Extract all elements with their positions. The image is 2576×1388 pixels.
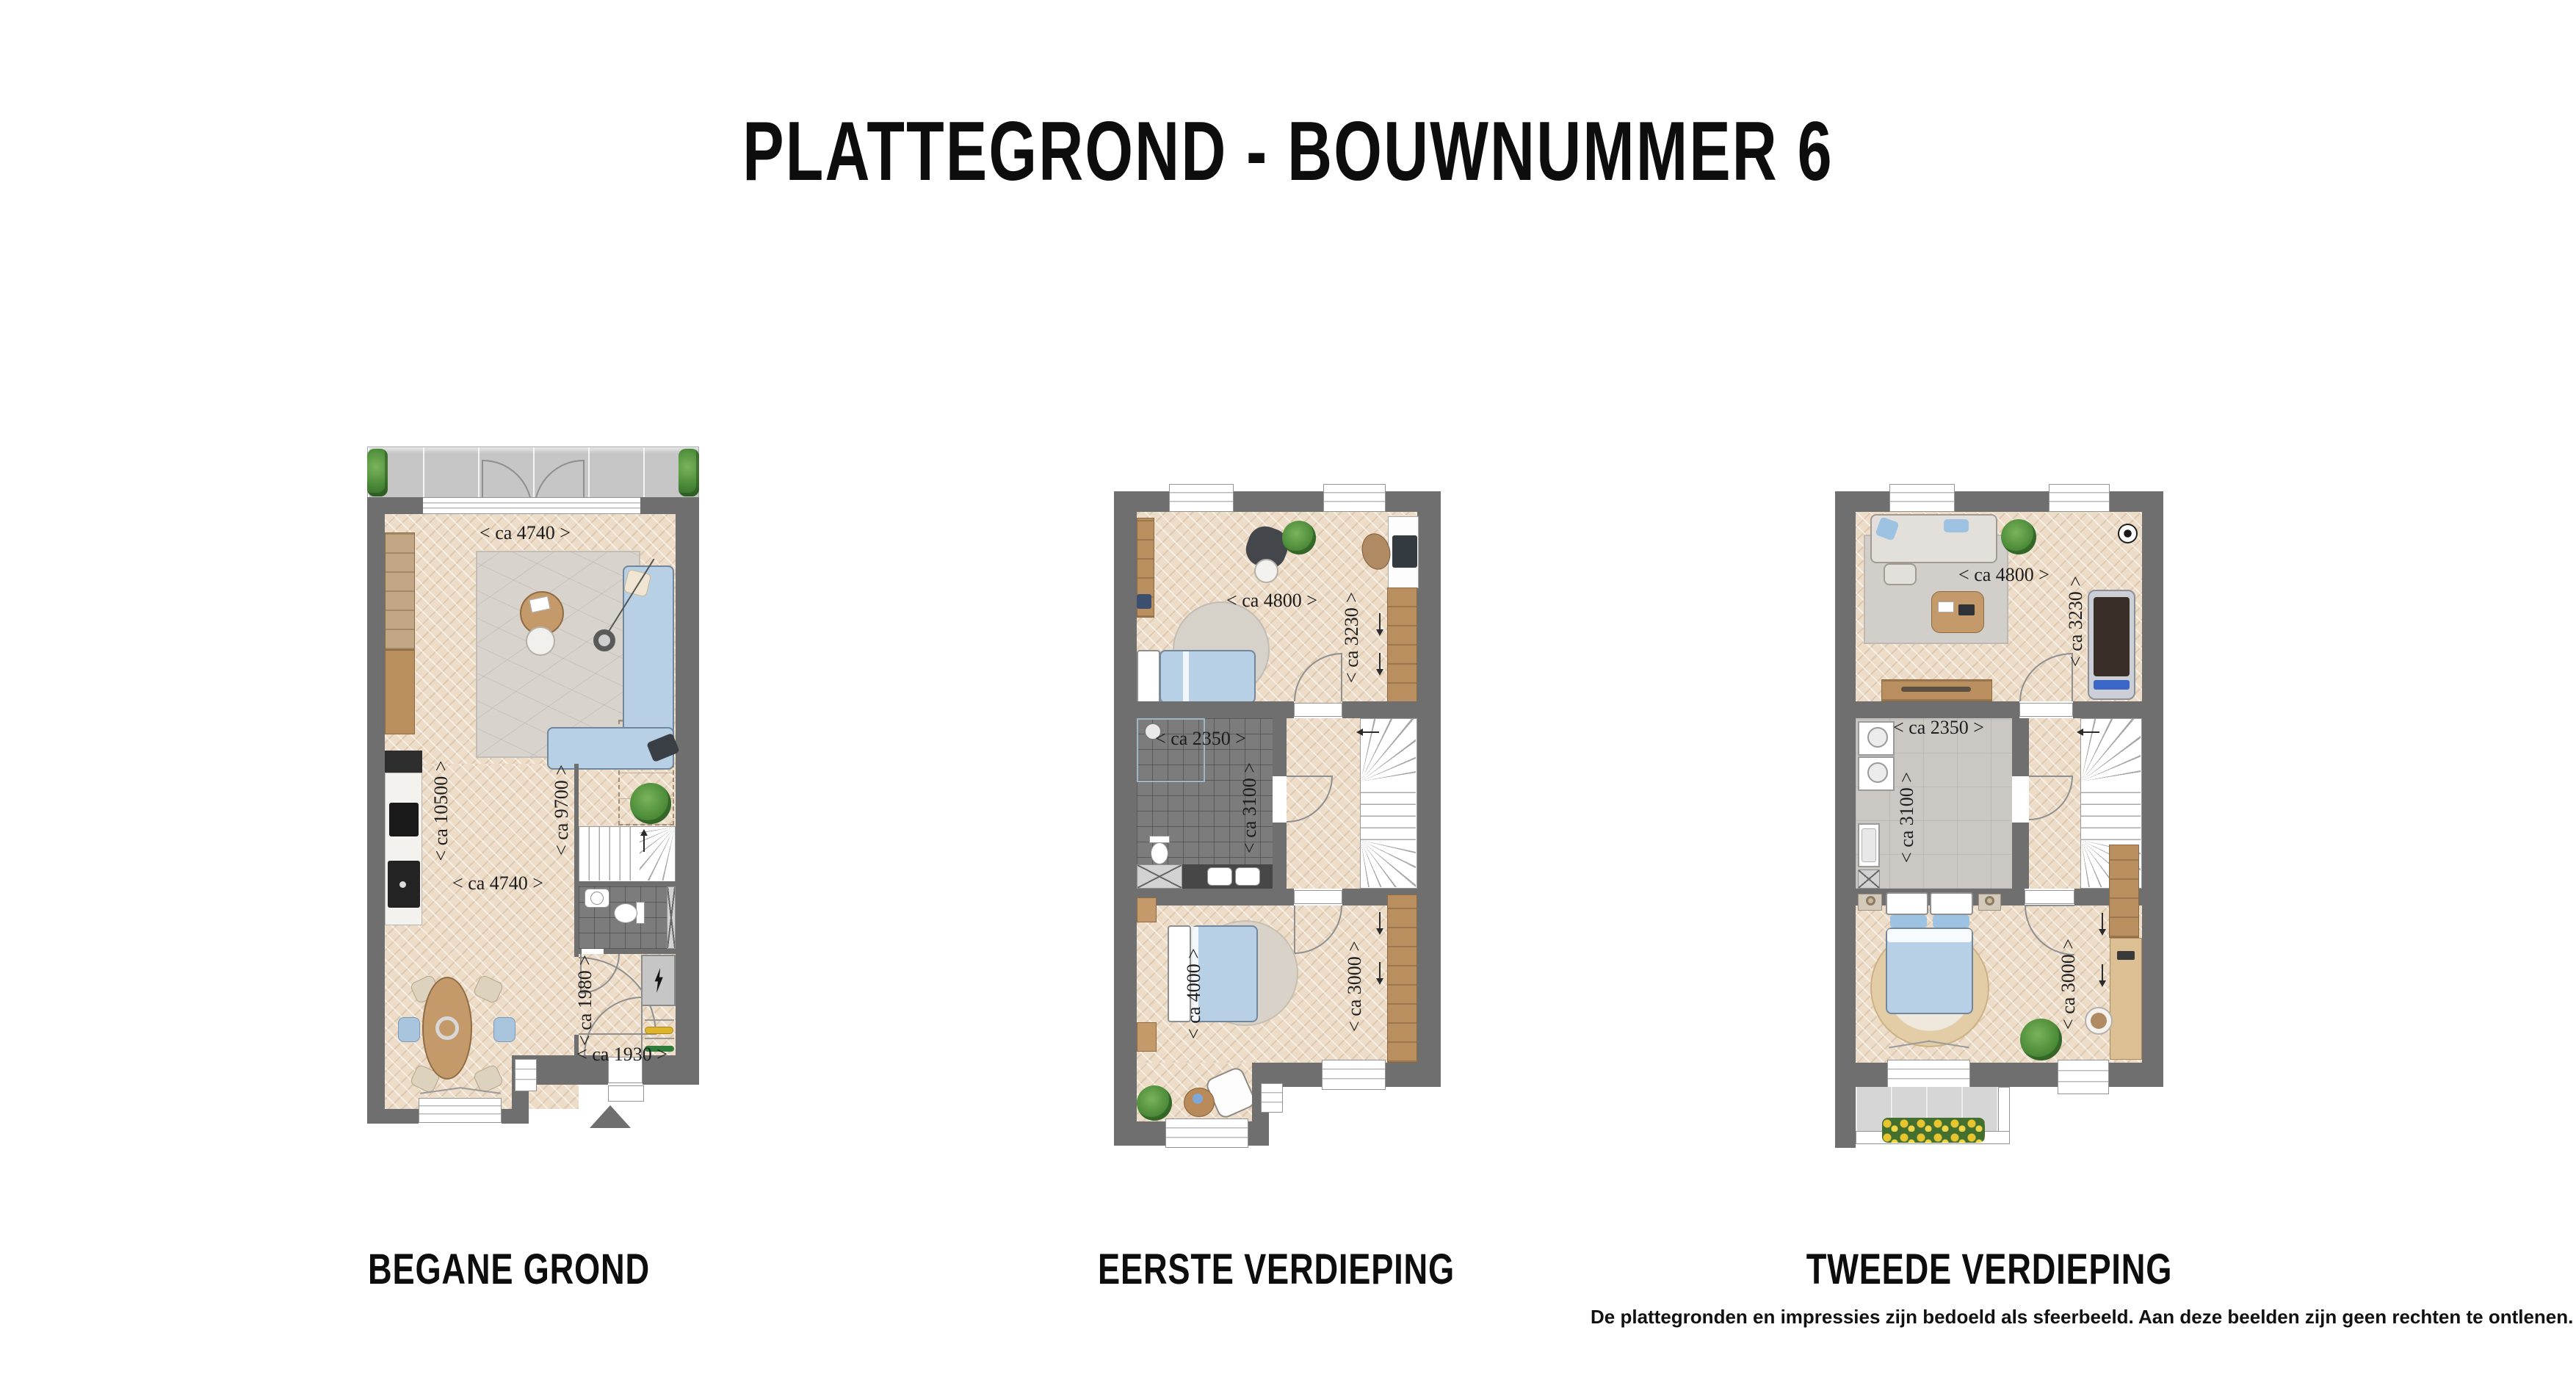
window bbox=[1261, 1083, 1283, 1113]
dim-label: < ca 3100 > bbox=[1240, 762, 1259, 853]
side-table bbox=[1254, 559, 1278, 583]
window bbox=[1165, 1118, 1248, 1148]
wall bbox=[2012, 823, 2029, 889]
hedge bbox=[367, 449, 388, 496]
wall bbox=[574, 764, 579, 957]
sink bbox=[1207, 867, 1232, 886]
entrance-step bbox=[608, 1085, 644, 1102]
wall bbox=[604, 949, 676, 954]
duct-shaft bbox=[1137, 864, 1182, 889]
tablet bbox=[1958, 604, 1975, 615]
dim-label: < ca 3230 > bbox=[2066, 576, 2085, 667]
skateboard bbox=[645, 1027, 673, 1034]
stool-cushion bbox=[2091, 1013, 2107, 1029]
stair-direction-arrow-icon bbox=[1356, 728, 1379, 737]
kitchen-tall-cabinet bbox=[385, 751, 422, 773]
floorplan-tweede-verdieping: < ca 4800 > < ca 3230 > < ca 2350 > < ca… bbox=[1835, 491, 2163, 1148]
wall bbox=[579, 949, 582, 954]
treadmill-belt bbox=[2094, 597, 2130, 676]
dim-label: < ca 2350 > bbox=[1893, 718, 1984, 737]
wardrobe bbox=[1387, 588, 1417, 704]
dim-label: < ca 4740 > bbox=[480, 524, 571, 543]
bed-pillow bbox=[1886, 892, 1928, 915]
entrance-marker-icon bbox=[590, 1105, 631, 1128]
sink bbox=[1235, 867, 1260, 886]
duvet-fold bbox=[1887, 929, 1972, 942]
terrace-paving bbox=[367, 447, 699, 498]
wall bbox=[2073, 701, 2142, 718]
wall bbox=[676, 497, 699, 1085]
wall bbox=[1114, 491, 1441, 512]
wall bbox=[1114, 1121, 1165, 1146]
floorplan-begane-grond: < ca 4740 > < ca 10500 > < ca 9700 > < c… bbox=[367, 445, 699, 1128]
wall bbox=[2012, 718, 2029, 776]
window bbox=[2049, 484, 2110, 512]
dim-label: < ca 1930 > bbox=[576, 1045, 667, 1064]
wardrobe bbox=[1387, 894, 1417, 1063]
dim-label: < ca 9700 > bbox=[552, 765, 571, 856]
wall bbox=[579, 881, 676, 886]
wall bbox=[1970, 1063, 2058, 1087]
magazine bbox=[1938, 601, 1954, 612]
shelf bbox=[645, 1038, 674, 1039]
wall bbox=[1114, 491, 1137, 1146]
stair-direction-arrow-icon bbox=[2076, 728, 2099, 737]
table-centerpiece bbox=[435, 1016, 459, 1040]
nightstand bbox=[1137, 1022, 1157, 1052]
arrow-icon bbox=[1375, 653, 1384, 676]
arrow-icon bbox=[2098, 964, 2107, 988]
stair-treads bbox=[1361, 781, 1416, 840]
wall bbox=[1386, 1063, 1417, 1087]
plant bbox=[2020, 1019, 2062, 1060]
cushion bbox=[1944, 519, 1969, 532]
toilet-bowl bbox=[614, 903, 637, 923]
floor-label-begane-grond: BEGANE GROND bbox=[368, 1248, 650, 1291]
wall bbox=[502, 1109, 529, 1124]
nightstand bbox=[1137, 897, 1157, 922]
dim-label: < ca 3000 > bbox=[1345, 941, 1364, 1032]
dim-label: < ca 4800 > bbox=[1958, 565, 2049, 585]
tv-cabinet bbox=[385, 650, 415, 734]
window bbox=[515, 1059, 537, 1091]
nightstand-lamp bbox=[1866, 896, 1875, 906]
floor-label-tweede-verdieping: TWEEDE VERDIEPING bbox=[1806, 1248, 2172, 1291]
bed-pillow bbox=[1930, 892, 1973, 915]
nightstand-lamp bbox=[1985, 896, 1994, 906]
toilet-bowl bbox=[1151, 842, 1168, 864]
wall bbox=[1248, 1121, 1269, 1146]
wall bbox=[1342, 701, 1417, 718]
french-balcony-door bbox=[2058, 1060, 2109, 1094]
hedge bbox=[679, 449, 699, 496]
balcony-door bbox=[1887, 1060, 1970, 1090]
floor-lamp-base bbox=[593, 629, 615, 651]
staircase bbox=[579, 826, 676, 882]
plant bbox=[1137, 1085, 1172, 1121]
wall bbox=[367, 497, 385, 1124]
stair-winders bbox=[1361, 840, 1416, 887]
tv-cabinet bbox=[385, 532, 415, 650]
wall bbox=[1835, 1063, 1887, 1087]
washer-drum bbox=[1867, 727, 1888, 748]
dryer-drum bbox=[1867, 762, 1888, 783]
dim-label: < ca 2350 > bbox=[1155, 729, 1246, 748]
wall bbox=[367, 1109, 419, 1124]
arrow-icon bbox=[1375, 613, 1384, 637]
cushion bbox=[1890, 915, 1927, 928]
wall bbox=[1417, 491, 1441, 1087]
shelf bbox=[645, 1019, 674, 1021]
stair-direction-arrow-icon bbox=[640, 828, 648, 852]
page-title: PLATTEGROND - BOUWNUMMER 6 bbox=[335, 110, 2241, 194]
arrow-icon bbox=[1375, 912, 1384, 936]
single-bed bbox=[1159, 650, 1256, 704]
wall bbox=[1273, 718, 1287, 776]
cabinet-door bbox=[1862, 828, 1876, 862]
plant bbox=[630, 783, 671, 824]
duvet-fold bbox=[1183, 651, 1189, 702]
wall bbox=[1137, 889, 1294, 906]
side-table bbox=[526, 626, 555, 656]
plant bbox=[1282, 521, 1316, 554]
dim-label: < ca 4000 > bbox=[1184, 948, 1204, 1039]
wall bbox=[1273, 823, 1287, 889]
flower-vase bbox=[1193, 1094, 1203, 1104]
window bbox=[1323, 484, 1386, 512]
bed-pillow bbox=[1137, 650, 1160, 704]
door-threshold bbox=[2025, 890, 2074, 904]
door-threshold bbox=[2019, 703, 2073, 717]
window bbox=[1889, 484, 1955, 512]
wall bbox=[1835, 491, 2163, 512]
plant bbox=[2001, 519, 2036, 554]
floorplan-eerste-verdieping: < ca 4800 > < ca 3230 > < ca 2350 > < ca… bbox=[1114, 491, 1441, 1147]
door-threshold bbox=[1294, 703, 1342, 717]
arrow-icon bbox=[2098, 913, 2107, 936]
sofa-chaise bbox=[1884, 563, 1917, 585]
staircase bbox=[1360, 718, 1417, 889]
disclaimer-text: De plattegronden en impressies zijn bedo… bbox=[1591, 1306, 2573, 1329]
page: { "title": "PLATTEGROND - BOUWNUMMER 6",… bbox=[0, 0, 2576, 1388]
cooktop bbox=[389, 803, 419, 836]
basin-bowl bbox=[590, 892, 604, 905]
dining-chair bbox=[493, 1017, 515, 1042]
window-band bbox=[422, 497, 641, 514]
dim-label: < ca 3230 > bbox=[1342, 592, 1361, 683]
laptop bbox=[1392, 535, 1417, 568]
wall bbox=[2109, 1063, 2163, 1087]
wall bbox=[1856, 701, 2019, 718]
wardrobe bbox=[2109, 845, 2139, 938]
wall bbox=[1137, 701, 1294, 718]
dim-label: < ca 10500 > bbox=[432, 761, 451, 861]
floor-label-eerste-verdieping: EERSTE VERDIEPING bbox=[1098, 1248, 1455, 1291]
window bbox=[419, 1098, 502, 1123]
window bbox=[1169, 484, 1234, 512]
cushion bbox=[1933, 915, 1969, 928]
treadmill-display bbox=[2094, 680, 2130, 690]
soundbar bbox=[1901, 687, 1971, 692]
faucet bbox=[399, 881, 406, 888]
dim-label: < ca 3000 > bbox=[2059, 939, 2078, 1030]
stair-treads bbox=[579, 827, 640, 881]
stair-treads bbox=[2081, 781, 2141, 840]
dim-label: < ca 4740 > bbox=[452, 874, 543, 893]
window bbox=[1322, 1060, 1386, 1090]
storage-box bbox=[1137, 594, 1151, 609]
duct-shaft bbox=[1858, 870, 1880, 889]
dining-chair bbox=[398, 1017, 420, 1042]
dim-label: < ca 1980 > bbox=[576, 955, 595, 1046]
football bbox=[2118, 524, 2138, 543]
makeup-box bbox=[2117, 951, 2135, 960]
arrow-icon bbox=[1375, 962, 1384, 986]
wall bbox=[2142, 491, 2163, 1087]
door-threshold bbox=[1294, 890, 1342, 904]
flower-planter bbox=[1882, 1118, 1985, 1143]
duct-shaft bbox=[667, 886, 676, 949]
wall bbox=[1835, 491, 1856, 1148]
dim-label: < ca 4800 > bbox=[1226, 591, 1317, 610]
dim-label: < ca 3100 > bbox=[1897, 772, 1917, 863]
